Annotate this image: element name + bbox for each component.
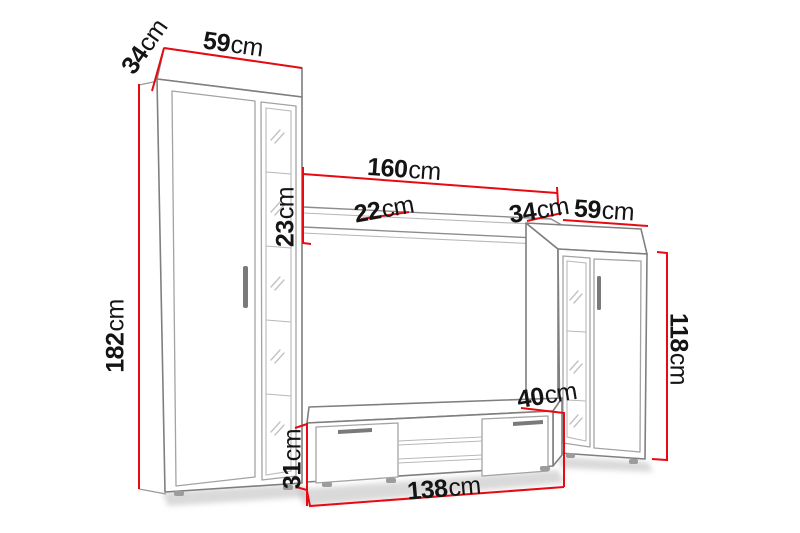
right-cabinet-door <box>594 259 641 452</box>
dim-unit: cm <box>102 299 130 331</box>
dim-label-tv-stand-height: 31cm <box>281 429 306 489</box>
dim-value: 40 <box>515 382 546 414</box>
dim-value: 118 <box>665 313 693 352</box>
dim-unit: cm <box>379 190 416 223</box>
dim-unit: cm <box>229 30 265 62</box>
line-drawing <box>0 0 800 533</box>
furniture-dimension-diagram: 34cm 59cm 182cm 160cm 23cm 22cm 34cm 59c… <box>0 0 800 533</box>
left-cabinet-handle <box>243 266 248 308</box>
dim-unit: cm <box>272 187 300 219</box>
dim-value: 31 <box>279 462 307 489</box>
dim-unit: cm <box>665 353 693 385</box>
dim-value: 160 <box>366 153 408 184</box>
dim-label-tv-stand-width: 138cm <box>406 473 481 504</box>
dim-unit: cm <box>535 192 571 225</box>
dim-value: 23 <box>272 220 300 247</box>
shelf-board-front-bottom-edge <box>303 233 561 245</box>
tv-stand-foot <box>386 478 396 483</box>
dim-value: 22 <box>352 196 383 228</box>
tv-stand-foot <box>322 482 332 487</box>
right-cabinet-foot <box>566 453 575 458</box>
shelf-board-front-top-edge <box>303 227 558 239</box>
dim-unit: cm <box>543 377 579 410</box>
dim-value: 59 <box>201 26 231 57</box>
dim-unit: cm <box>601 196 635 226</box>
dim-label-shelf-height: 23cm <box>274 187 299 247</box>
dim-value: 138 <box>406 474 449 505</box>
dim-unit: cm <box>279 429 307 461</box>
dim-value: 34 <box>507 197 538 229</box>
tv-stand-foot <box>540 466 550 471</box>
right-cabinet-foot <box>629 459 638 464</box>
dim-label-right-cabinet-width: 59cm <box>573 196 635 225</box>
dim-unit: cm <box>407 156 441 186</box>
dim-value: 182 <box>102 333 130 373</box>
left-cabinet-door <box>172 91 255 486</box>
dim-label-shelf-width: 160cm <box>366 155 441 185</box>
dim-label-left-cabinet-height: 182cm <box>104 299 129 373</box>
dim-unit: cm <box>447 471 482 502</box>
right-cabinet-handle <box>597 276 601 310</box>
dim-value: 59 <box>573 194 602 224</box>
dim-label-right-cabinet-height: 118cm <box>666 313 691 385</box>
left-cabinet-foot <box>174 491 184 496</box>
